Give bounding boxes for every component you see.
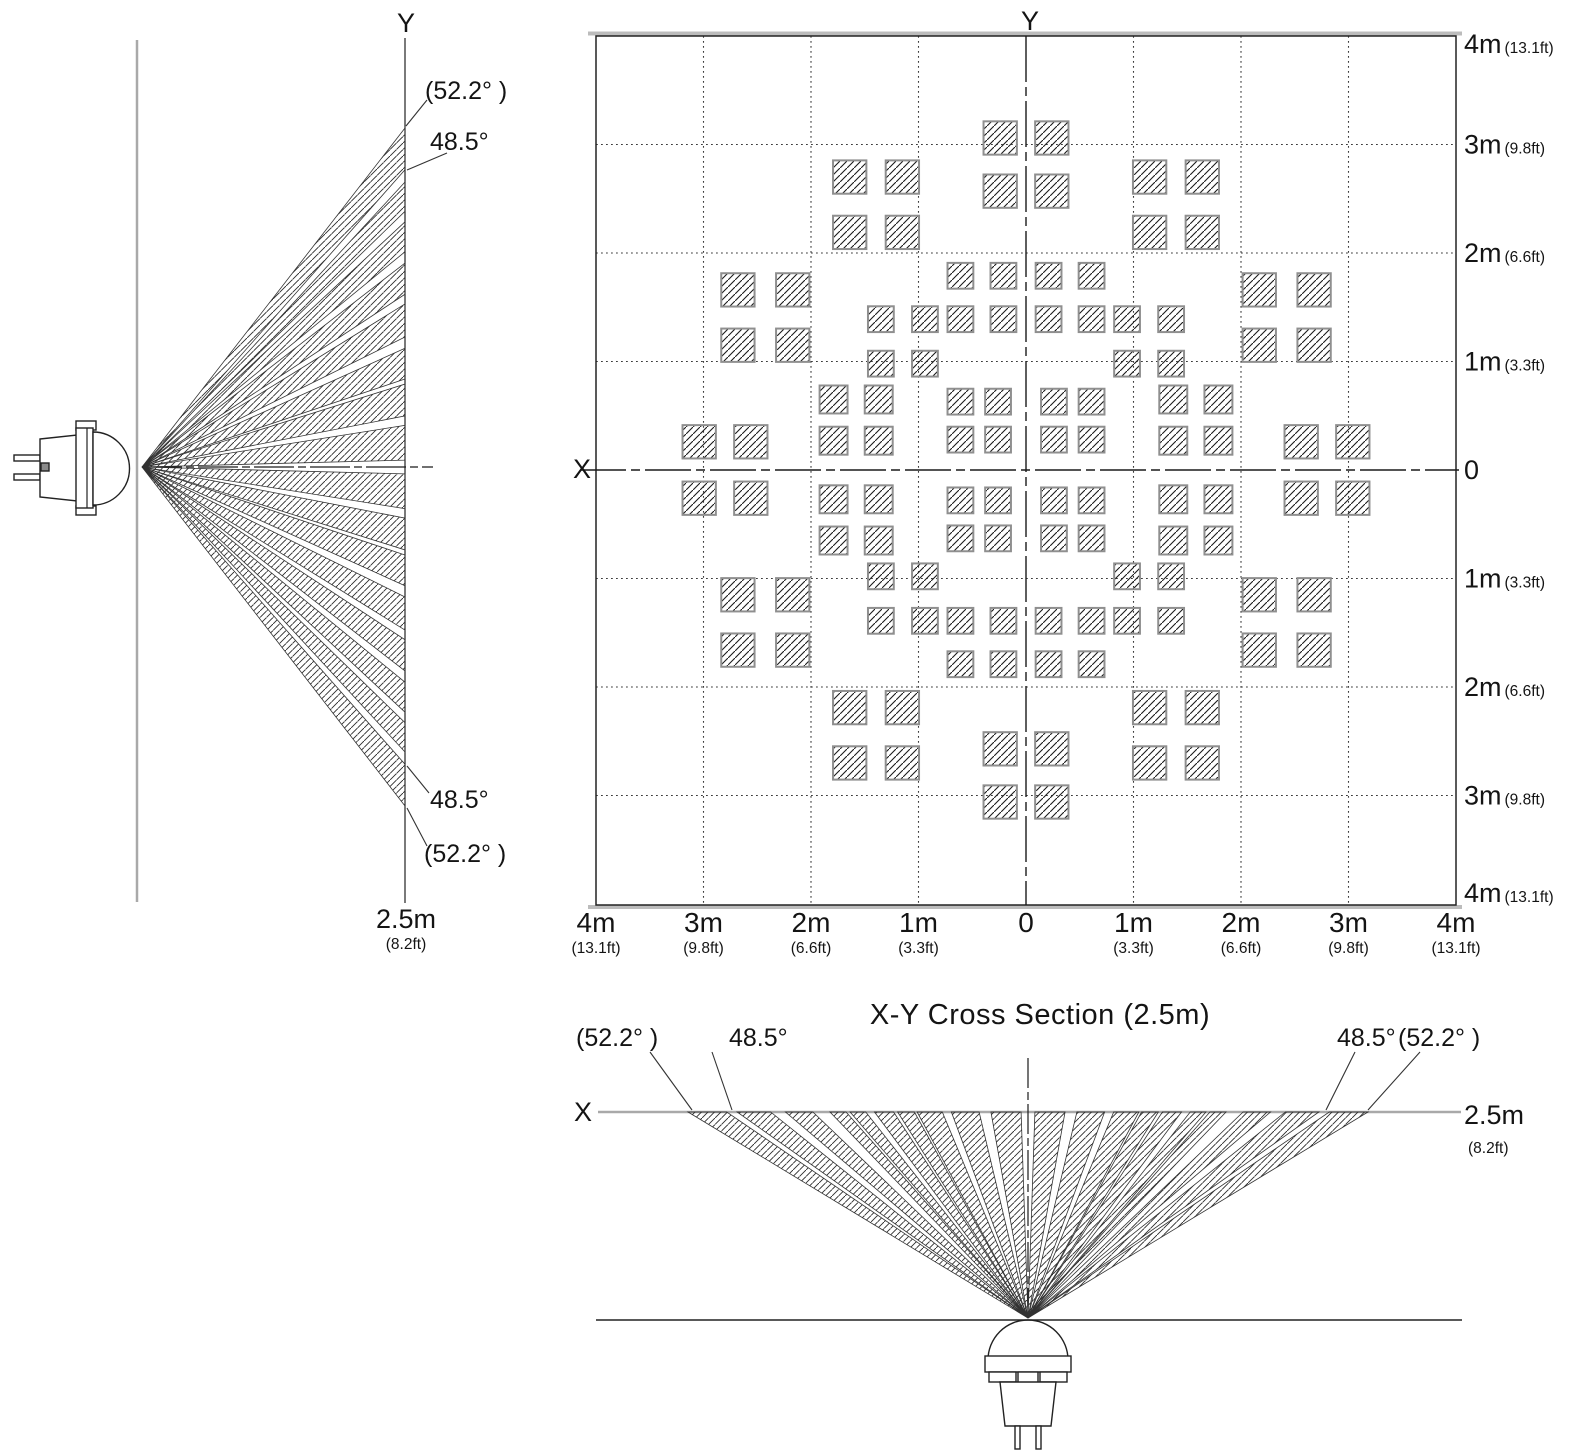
- detection-zone-center-side-cluster: [820, 485, 848, 513]
- detection-zone-center-cluster: [1041, 525, 1067, 551]
- detection-zone-inner-near-y-axis: [991, 263, 1017, 289]
- sensor-flange: [985, 1356, 1071, 1372]
- detection-zone-inner-near-y-axis: [991, 651, 1017, 677]
- detection-zone-diagonal-outer-lower: [776, 578, 809, 611]
- side-distance-ft-label: (8.2ft): [386, 936, 426, 953]
- bottom-angle-inner-left-label: 48.5°: [729, 1024, 788, 1052]
- y-tick-m: 1m: [1464, 564, 1502, 594]
- bottom-x-axis-label: X: [574, 1097, 592, 1127]
- y-tick-m: 0: [1464, 455, 1479, 485]
- x-tick-ft-label: (13.1ft): [1431, 940, 1480, 957]
- x-tick-label: 1m: [1114, 907, 1153, 938]
- grid-y-axis-label: Y: [1021, 6, 1039, 36]
- y-tick-m: 1m: [1464, 347, 1502, 377]
- detection-zone-y-axis-outer: [1035, 785, 1068, 818]
- side-angle-inner-bottom-label: 48.5°: [430, 786, 489, 814]
- detection-zone-center-cluster: [1079, 427, 1105, 453]
- detection-zone-center-cluster: [948, 389, 974, 415]
- y-tick-label: 1m(3.3ft): [1464, 347, 1545, 377]
- detection-zone-diagonal-outer-lower: [776, 633, 809, 666]
- detection-area-diagram: 4m(13.1ft)3m(9.8ft)2m(6.6ft)1m(3.3ft)01m…: [0, 0, 1570, 1452]
- detection-zone-diagonal-outer-lower: [721, 329, 754, 362]
- side-distance-label: 2.5m: [376, 904, 436, 934]
- detection-zone-inner-diagonal: [912, 563, 938, 589]
- x-tick-label: 4m: [1437, 907, 1476, 938]
- detection-zone-center-cluster: [1041, 389, 1067, 415]
- detection-zone-diagonal-outer-upper: [1133, 691, 1166, 724]
- y-tick-ft: (13.1ft): [1505, 889, 1554, 906]
- detection-zone-center-side-cluster: [865, 527, 893, 555]
- detection-zone-diagonal-outer-lower: [1297, 273, 1330, 306]
- detection-zone-diagonal-outer-lower: [721, 633, 754, 666]
- detection-zone-inner-diagonal: [868, 608, 894, 634]
- leader-line: [650, 1052, 692, 1110]
- sensor-pin: [1015, 1426, 1020, 1449]
- detection-zone-center-side-cluster: [865, 386, 893, 414]
- detection-zone-diagonal-outer-upper: [1186, 691, 1219, 724]
- bottom-distance-label: 2.5m: [1464, 1100, 1524, 1130]
- detection-zone-y-axis-outer: [1035, 121, 1068, 154]
- y-tick-m: 3m: [1464, 781, 1502, 811]
- detection-zone-center-side-cluster: [865, 485, 893, 513]
- detection-zone-diagonal-outer-lower: [776, 329, 809, 362]
- detection-zone-diagonal-outer-lower: [1297, 578, 1330, 611]
- detection-zone-diagonal-outer-upper: [1133, 216, 1166, 249]
- detection-zone-inner-diagonal: [868, 351, 894, 377]
- side-angle-outer-bottom-label: (52.2° ): [424, 840, 506, 868]
- sensor-body-notch: [41, 463, 49, 471]
- side-view-group: [14, 38, 447, 903]
- detection-zone-x-axis-outer: [683, 425, 716, 458]
- detection-zone-x-axis-outer: [1285, 425, 1318, 458]
- x-tick-label: 3m: [684, 907, 723, 938]
- detection-zone-center-cluster: [1041, 427, 1067, 453]
- bottom-distance-ft-label: (8.2ft): [1468, 1140, 1508, 1157]
- leader-line: [406, 100, 427, 126]
- detection-zone-diagonal-outer-lower: [1243, 329, 1276, 362]
- detection-zone-y-axis-outer: [984, 732, 1017, 765]
- detection-zone-diagonal-outer-lower: [1297, 329, 1330, 362]
- x-tick-ft-label: (9.8ft): [683, 940, 723, 957]
- sensor-pin: [1036, 1426, 1041, 1449]
- detection-zone-inner-diagonal: [1114, 351, 1140, 377]
- cross-section-title: X-Y Cross Section (2.5m): [870, 999, 1210, 1031]
- detection-zone-center-side-cluster: [1159, 527, 1187, 555]
- side-angle-outer-top-label: (52.2° ): [425, 77, 507, 105]
- detection-zone-diagonal-outer-lower: [1243, 578, 1276, 611]
- detection-zone-inner-near-y-axis: [1079, 651, 1105, 677]
- detection-zone-diagonal-outer-lower: [721, 578, 754, 611]
- y-tick-ft: (6.6ft): [1505, 249, 1545, 266]
- y-tick-ft: (9.8ft): [1505, 792, 1545, 809]
- detection-zone-x-axis-outer: [734, 482, 767, 515]
- detection-zone-center-cluster: [1079, 487, 1105, 513]
- y-tick-ft: (3.3ft): [1505, 358, 1545, 375]
- detection-zone-center-side-cluster: [820, 527, 848, 555]
- detection-zone-center-cluster: [948, 525, 974, 551]
- detection-zone-inner-diagonal: [1158, 306, 1184, 332]
- pir-detection-diagram-page: 4m(13.1ft)3m(9.8ft)2m(6.6ft)1m(3.3ft)01m…: [0, 0, 1570, 1452]
- sensor-dome-lens: [93, 432, 130, 505]
- detection-zone-inner-diagonal: [1114, 306, 1140, 332]
- y-tick-m: 2m: [1464, 238, 1502, 268]
- sensor-flange-tab: [989, 1372, 1016, 1382]
- detection-zone-center-cluster: [985, 389, 1011, 415]
- detection-zone-y-axis-outer: [984, 121, 1017, 154]
- y-tick-label: 1m(3.3ft): [1464, 564, 1545, 594]
- detection-zone-inner-near-y-axis: [948, 608, 974, 634]
- detection-zone-diagonal-outer-upper: [886, 160, 919, 193]
- x-tick-label: 4m: [577, 907, 616, 938]
- leader-line: [1326, 1052, 1355, 1110]
- detection-zone-diagonal-outer-upper: [1133, 160, 1166, 193]
- beam-wedge-side: [142, 467, 405, 752]
- detection-zone-diagonal-outer-upper: [1186, 160, 1219, 193]
- detection-zone-x-axis-outer: [683, 482, 716, 515]
- detection-zone-center-cluster: [1079, 525, 1105, 551]
- y-tick-label: 4m(13.1ft): [1464, 878, 1554, 908]
- y-tick-ft: (3.3ft): [1505, 575, 1545, 592]
- detection-zone-inner-near-y-axis: [1036, 263, 1062, 289]
- detection-zone-center-cluster: [1041, 487, 1067, 513]
- detection-zone-diagonal-outer-lower: [1243, 273, 1276, 306]
- detection-zone-diagonal-outer-upper: [1186, 746, 1219, 779]
- sensor-dome-lens: [988, 1320, 1068, 1360]
- detection-zone-diagonal-outer-upper: [833, 160, 866, 193]
- detection-zone-inner-near-y-axis: [1036, 651, 1062, 677]
- x-tick-label: 3m: [1329, 907, 1368, 938]
- detection-zone-center-side-cluster: [1204, 386, 1232, 414]
- sensor-pin: [14, 455, 40, 461]
- detection-zone-center-cluster: [1079, 389, 1105, 415]
- detection-zone-x-axis-outer: [734, 425, 767, 458]
- detection-zone-diagonal-outer-upper: [886, 691, 919, 724]
- x-tick-label: 1m: [899, 907, 938, 938]
- y-tick-ft: (9.8ft): [1505, 141, 1545, 158]
- x-tick-ft-label: (6.6ft): [791, 940, 831, 957]
- x-tick-ft-label: (9.8ft): [1328, 940, 1368, 957]
- detection-zone-center-side-cluster: [1204, 527, 1232, 555]
- x-tick-ft-label: (3.3ft): [898, 940, 938, 957]
- bottom-angle-outer-right-label: (52.2° ): [1398, 1024, 1480, 1052]
- detection-zone-center-side-cluster: [865, 427, 893, 455]
- detection-zone-inner-diagonal: [1158, 563, 1184, 589]
- bottom-view-group: [596, 1052, 1462, 1449]
- detection-zone-inner-near-y-axis: [948, 651, 974, 677]
- detection-zone-y-axis-outer: [1035, 732, 1068, 765]
- sensor-flange-tab: [1040, 1372, 1067, 1382]
- detection-zone-diagonal-outer-upper: [1186, 216, 1219, 249]
- detection-zone-center-side-cluster: [820, 386, 848, 414]
- bottom-angle-inner-right-label: 48.5°: [1337, 1024, 1396, 1052]
- detection-zone-inner-diagonal: [1114, 608, 1140, 634]
- detection-zone-inner-near-y-axis: [1079, 306, 1105, 332]
- y-tick-label: 3m(9.8ft): [1464, 781, 1545, 811]
- detection-zone-inner-diagonal: [868, 563, 894, 589]
- detection-zone-center-side-cluster: [820, 427, 848, 455]
- detection-zone-center-side-cluster: [1204, 485, 1232, 513]
- detection-zone-inner-near-y-axis: [1036, 608, 1062, 634]
- detection-zone-center-side-cluster: [1159, 386, 1187, 414]
- detection-zone-diagonal-outer-upper: [886, 746, 919, 779]
- y-tick-ft: (13.1ft): [1505, 40, 1554, 57]
- detection-zone-diagonal-outer-upper: [1133, 746, 1166, 779]
- detection-zone-inner-diagonal: [1158, 351, 1184, 377]
- detection-zone-inner-near-y-axis: [948, 306, 974, 332]
- detection-zone-diagonal-outer-lower: [776, 273, 809, 306]
- detection-zone-y-axis-outer: [984, 785, 1017, 818]
- sensor-side-view: [14, 421, 130, 515]
- side-y-axis-label: Y: [397, 8, 415, 38]
- detection-zone-x-axis-outer: [1336, 482, 1369, 515]
- y-tick-m: 2m: [1464, 672, 1502, 702]
- detection-zone-diagonal-outer-lower: [1297, 633, 1330, 666]
- x-tick-label: 2m: [792, 907, 831, 938]
- detection-zone-diagonal-outer-upper: [833, 216, 866, 249]
- detection-zone-y-axis-outer: [1035, 174, 1068, 207]
- leader-line: [712, 1052, 732, 1110]
- y-tick-label: 2m(6.6ft): [1464, 672, 1545, 702]
- detection-zone-center-side-cluster: [1159, 485, 1187, 513]
- detection-zone-diagonal-outer-upper: [886, 216, 919, 249]
- detection-zone-center-cluster: [948, 427, 974, 453]
- x-tick-ft-label: (3.3ft): [1113, 940, 1153, 957]
- detection-zone-center-side-cluster: [1159, 427, 1187, 455]
- detection-zone-center-cluster: [985, 427, 1011, 453]
- detection-zone-y-axis-outer: [984, 174, 1017, 207]
- cross-section-group: 4m(13.1ft)3m(9.8ft)2m(6.6ft)1m(3.3ft)01m…: [571, 29, 1553, 957]
- y-tick-ft: (6.6ft): [1505, 683, 1545, 700]
- detection-zone-diagonal-outer-upper: [833, 746, 866, 779]
- sensor-flange: [76, 428, 93, 508]
- detection-zone-inner-near-y-axis: [1036, 306, 1062, 332]
- detection-zone-center-cluster: [948, 487, 974, 513]
- y-tick-label: 3m(9.8ft): [1464, 130, 1545, 160]
- y-tick-m: 3m: [1464, 130, 1502, 160]
- sensor-front-view: [985, 1320, 1071, 1449]
- beam-wedge-side: [142, 182, 405, 467]
- detection-zone-inner-near-y-axis: [1079, 263, 1105, 289]
- detection-zone-center-cluster: [985, 525, 1011, 551]
- detection-zone-center-side-cluster: [1204, 427, 1232, 455]
- y-tick-m: 4m: [1464, 29, 1502, 59]
- y-tick-label: 4m(13.1ft): [1464, 29, 1554, 59]
- detection-zone-inner-diagonal: [868, 306, 894, 332]
- sensor-body: [1000, 1382, 1056, 1426]
- detection-zone-inner-diagonal: [1158, 608, 1184, 634]
- y-tick-label: 0: [1464, 455, 1479, 485]
- y-tick-m: 4m: [1464, 878, 1502, 908]
- detection-zone-x-axis-outer: [1285, 482, 1318, 515]
- bottom-angle-outer-left-label: (52.2° ): [576, 1024, 658, 1052]
- grid-x-axis-label: X: [573, 454, 591, 484]
- detection-zone-inner-diagonal: [1114, 563, 1140, 589]
- detection-zone-x-axis-outer: [1336, 425, 1369, 458]
- detection-zone-inner-near-y-axis: [991, 306, 1017, 332]
- detection-zone-inner-near-y-axis: [948, 263, 974, 289]
- side-angle-inner-top-label: 48.5°: [430, 128, 489, 156]
- detection-zone-center-cluster: [985, 487, 1011, 513]
- detection-zone-inner-diagonal: [912, 351, 938, 377]
- detection-zone-diagonal-outer-upper: [833, 691, 866, 724]
- leader-line: [1368, 1052, 1420, 1110]
- detection-zone-inner-diagonal: [912, 306, 938, 332]
- y-tick-label: 2m(6.6ft): [1464, 238, 1545, 268]
- leader-line: [407, 766, 429, 793]
- detection-zone-inner-near-y-axis: [1079, 608, 1105, 634]
- x-tick-ft-label: (6.6ft): [1221, 940, 1261, 957]
- x-tick-label: 2m: [1222, 907, 1261, 938]
- detection-zone-diagonal-outer-lower: [721, 273, 754, 306]
- detection-zone-inner-near-y-axis: [991, 608, 1017, 634]
- detection-zone-diagonal-outer-lower: [1243, 633, 1276, 666]
- x-tick-ft-label: (13.1ft): [571, 940, 620, 957]
- sensor-pin: [14, 474, 40, 480]
- x-tick-label: 0: [1018, 907, 1034, 938]
- detection-zone-inner-diagonal: [912, 608, 938, 634]
